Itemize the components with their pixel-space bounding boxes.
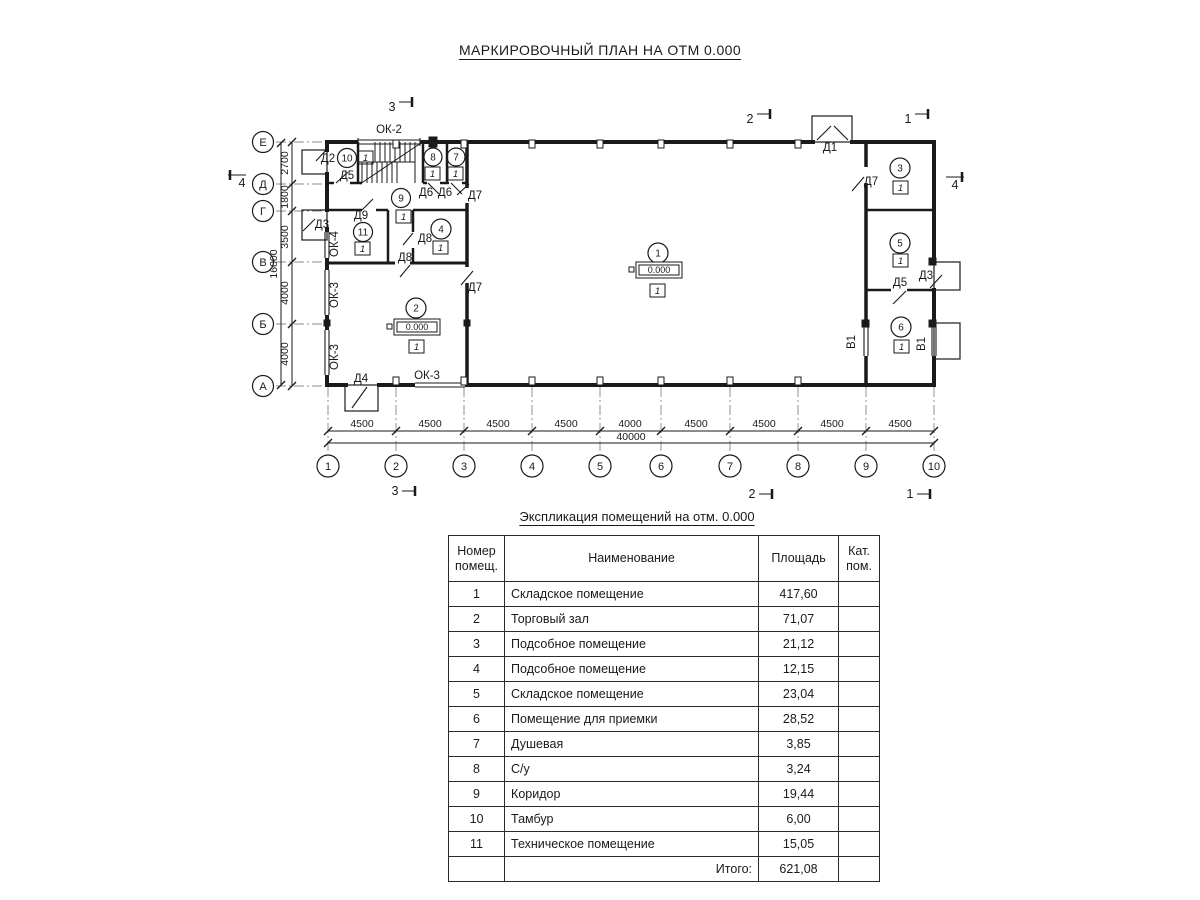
- dimension-lines: [277, 138, 938, 447]
- room-num-cell: 9: [449, 782, 505, 807]
- dimension-labels: 4500 4500 4500 4500 4000 4500 4500 4500 …: [268, 151, 912, 443]
- room-num-cell: 4: [449, 657, 505, 682]
- total-label-cell: Итого:: [505, 857, 759, 882]
- window-label-ok3-upper: ОК-3: [329, 282, 341, 308]
- room-7-badge: 1: [453, 169, 458, 180]
- room-2-badge: 1: [414, 342, 419, 353]
- platform-d3: [934, 262, 960, 290]
- dim-v-b: 4000: [279, 281, 291, 305]
- dim-8-9: 4500: [820, 418, 844, 430]
- room-1-badge: 1: [655, 286, 660, 297]
- grid-col-10: 10: [928, 461, 940, 473]
- room-3-badge: 1: [898, 183, 903, 194]
- dim-1-2: 4500: [350, 418, 374, 430]
- room-area-cell: 12,15: [759, 657, 839, 682]
- table-row: 5Складское помещение23,04: [449, 682, 880, 707]
- room-area-cell: 417,60: [759, 582, 839, 607]
- room-name-cell: Помещение для приемки: [505, 707, 759, 732]
- room-6-badge: 1: [899, 342, 904, 353]
- door-label-d2: Д2: [321, 153, 335, 165]
- window-label-ok4: ОК-4: [329, 230, 341, 256]
- room-num-cell: 11: [449, 832, 505, 857]
- door-label-d8-a: Д8: [418, 233, 432, 245]
- room-8-badge: 1: [430, 169, 435, 180]
- room-4-number: 4: [438, 225, 444, 236]
- grid-col-6: 6: [658, 461, 664, 473]
- room-4-badge: 1: [438, 243, 443, 254]
- table-row: 1Складское помещение417,60: [449, 582, 880, 607]
- door-label-d7-corridor: Д7: [468, 190, 482, 202]
- header-category: Кат.пом.: [839, 536, 880, 582]
- room-7-number: 7: [453, 153, 459, 164]
- total-cat-cell: [839, 857, 880, 882]
- dim-9-10: 4500: [888, 418, 912, 430]
- grid-col-9: 9: [863, 461, 869, 473]
- room-area-cell: 71,07: [759, 607, 839, 632]
- total-value-cell: 621,08: [759, 857, 839, 882]
- room-cat-cell: [839, 607, 880, 632]
- room-9-badge: 1: [401, 212, 406, 223]
- header-room-number: Номерпомещ.: [449, 536, 505, 582]
- window-ok3-bottom: [415, 383, 465, 387]
- room-num-cell: 3: [449, 632, 505, 657]
- room-name-cell: Подсобное помещение: [505, 632, 759, 657]
- window-label-ok3-bottom: ОК-3: [414, 370, 440, 382]
- vent-shaft: [429, 137, 437, 147]
- room-1-elevation: 0.000: [648, 265, 671, 275]
- room-name-cell: Коридор: [505, 782, 759, 807]
- table-row: 4Подсобное помещение12,15: [449, 657, 880, 682]
- room-5-badge: 1: [898, 256, 903, 267]
- gate-label-v1-left: В1: [846, 335, 858, 349]
- explication-title: Экспликация помещений на отм. 0.000: [448, 509, 826, 524]
- room-1-number: 1: [655, 249, 661, 260]
- door-label-d3-left: Д3: [315, 219, 329, 231]
- room-area-cell: 21,12: [759, 632, 839, 657]
- room-8-number: 8: [430, 153, 436, 164]
- grid-centerlines: [276, 142, 934, 453]
- room-cat-cell: [839, 632, 880, 657]
- table-row: 6Помещение для приемки28,52: [449, 707, 880, 732]
- door-label-d5-tambour: Д5: [340, 170, 354, 182]
- room-cat-cell: [839, 807, 880, 832]
- door-label-d7-room3: Д7: [864, 176, 878, 188]
- table-header-row: Номерпомещ. Наименование Площадь Кат.пом…: [449, 536, 880, 582]
- window-label-ok2: ОК-2: [376, 124, 402, 136]
- room-num-cell: 1: [449, 582, 505, 607]
- section-4-right: 4: [952, 178, 959, 192]
- dim-5-6: 4000: [618, 418, 642, 430]
- room-name-cell: Складское помещение: [505, 582, 759, 607]
- room-11-badge: 1: [360, 244, 365, 255]
- room-name-cell: Тамбур: [505, 807, 759, 832]
- table-row: 9Коридор19,44: [449, 782, 880, 807]
- grid-col-7: 7: [727, 461, 733, 473]
- grid-row-a: А: [259, 381, 267, 393]
- grid-row-b: Б: [259, 319, 266, 331]
- room-num-cell: 5: [449, 682, 505, 707]
- room-area-cell: 3,24: [759, 757, 839, 782]
- table-total-row: Итого:621,08: [449, 857, 880, 882]
- room-num-cell: 6: [449, 707, 505, 732]
- room-name-cell: С/у: [505, 757, 759, 782]
- room-cat-cell: [839, 732, 880, 757]
- dim-e-d: 2700: [279, 151, 291, 175]
- room-area-cell: 23,04: [759, 682, 839, 707]
- room-num-cell: 10: [449, 807, 505, 832]
- room-cat-cell: [839, 782, 880, 807]
- dim-3-4: 4500: [486, 418, 510, 430]
- porch-d4: [345, 385, 378, 411]
- room-name-cell: Подсобное помещение: [505, 657, 759, 682]
- room-9-number: 9: [398, 194, 404, 205]
- table-row: 11Техническое помещение15,05: [449, 832, 880, 857]
- opening-labels: Д1 Д2 Д3 Д4 Д5 Д9 Д6 Д6 Д7 Д8 Д8 Д7 Д7 Д…: [315, 124, 933, 385]
- room-cat-cell: [839, 657, 880, 682]
- door-leaves: [303, 126, 942, 408]
- room-2-elevation: 0.000: [406, 322, 429, 332]
- table-row: 10Тамбур6,00: [449, 807, 880, 832]
- window-label-ok3-lower: ОК-3: [329, 344, 341, 370]
- dim-2-3: 4500: [418, 418, 442, 430]
- grid-col-1: 1: [325, 461, 331, 473]
- door-label-d3-right: Д3: [919, 270, 933, 282]
- dim-d-g: 1800: [279, 185, 291, 209]
- room-num-cell: 8: [449, 757, 505, 782]
- grid-col-8: 8: [795, 461, 801, 473]
- gate-label-v1-right: В1: [916, 337, 928, 351]
- grid-row-v: В: [259, 257, 266, 269]
- room-area-cell: 28,52: [759, 707, 839, 732]
- room-cat-cell: [839, 832, 880, 857]
- dim-6-7: 4500: [684, 418, 708, 430]
- section-1-bottom: 1: [907, 487, 914, 501]
- room-cat-cell: [839, 582, 880, 607]
- room-cat-cell: [839, 757, 880, 782]
- room-name-cell: Складское помещение: [505, 682, 759, 707]
- door-label-d6-b: Д6: [438, 187, 452, 199]
- door-label-d4: Д4: [354, 373, 369, 385]
- room-num-cell: 7: [449, 732, 505, 757]
- door-label-d8-b: Д8: [398, 252, 412, 264]
- room-10-number: 10: [341, 154, 353, 165]
- grid-row-e: Е: [259, 137, 266, 149]
- room-6-number: 6: [898, 323, 904, 334]
- room-name-cell: Торговый зал: [505, 607, 759, 632]
- room-area-cell: 6,00: [759, 807, 839, 832]
- stair-treads-lower: [362, 162, 397, 183]
- room-5-number: 5: [897, 239, 903, 250]
- window-ok2: [358, 138, 420, 146]
- dim-total-width: 40000: [616, 431, 645, 443]
- room-11-number: 11: [358, 228, 369, 239]
- gate-v1-left: [864, 326, 868, 356]
- table-row: 2Торговый зал71,07: [449, 607, 880, 632]
- dim-b-a: 4000: [279, 342, 291, 366]
- door-label-d1: Д1: [823, 142, 837, 154]
- dim-g-v: 3500: [279, 225, 291, 249]
- room-name-cell: Душевая: [505, 732, 759, 757]
- room-cat-cell: [839, 707, 880, 732]
- door-label-d6-a: Д6: [419, 187, 433, 199]
- room-num-cell: 2: [449, 607, 505, 632]
- floor-plan: 4500 4500 4500 4500 4000 4500 4500 4500 …: [0, 0, 1200, 505]
- grid-row-d: Д: [259, 179, 267, 191]
- room-area-cell: 15,05: [759, 832, 839, 857]
- grid-col-2: 2: [393, 461, 399, 473]
- platform-v1: [934, 323, 960, 359]
- grid-col-3: 3: [461, 461, 467, 473]
- room-cat-cell: [839, 682, 880, 707]
- section-3-top: 3: [389, 100, 396, 114]
- dim-7-8: 4500: [752, 418, 776, 430]
- table-row: 3Подсобное помещение21,12: [449, 632, 880, 657]
- room-area-cell: 19,44: [759, 782, 839, 807]
- dim-4-5: 4500: [554, 418, 578, 430]
- section-2-top: 2: [747, 112, 754, 126]
- table-row: 7Душевая3,85: [449, 732, 880, 757]
- door-label-d7-hall: Д7: [468, 282, 482, 294]
- room-name-cell: Техническое помещение: [505, 832, 759, 857]
- section-2-bottom: 2: [749, 487, 756, 501]
- door-label-d9: Д9: [354, 210, 368, 222]
- door-label-d5-right: Д5: [893, 277, 907, 289]
- room-3-number: 3: [897, 164, 903, 175]
- section-4-left: 4: [239, 176, 246, 190]
- room-area-cell: 3,85: [759, 732, 839, 757]
- room-2-number: 2: [413, 304, 419, 315]
- elevation-marks: 0.000 0.000: [387, 262, 682, 335]
- section-3-bottom: 3: [392, 484, 399, 498]
- table-row: 8С/у3,24: [449, 757, 880, 782]
- header-area: Площадь: [759, 536, 839, 582]
- total-empty-cell: [449, 857, 505, 882]
- room-10-badge: 1: [363, 153, 368, 164]
- section-1-top: 1: [905, 112, 912, 126]
- header-name: Наименование: [505, 536, 759, 582]
- explication-table: Номерпомещ. Наименование Площадь Кат.пом…: [448, 535, 880, 882]
- grid-col-5: 5: [597, 461, 603, 473]
- grid-col-4: 4: [529, 461, 535, 473]
- grid-row-g: Г: [260, 206, 266, 218]
